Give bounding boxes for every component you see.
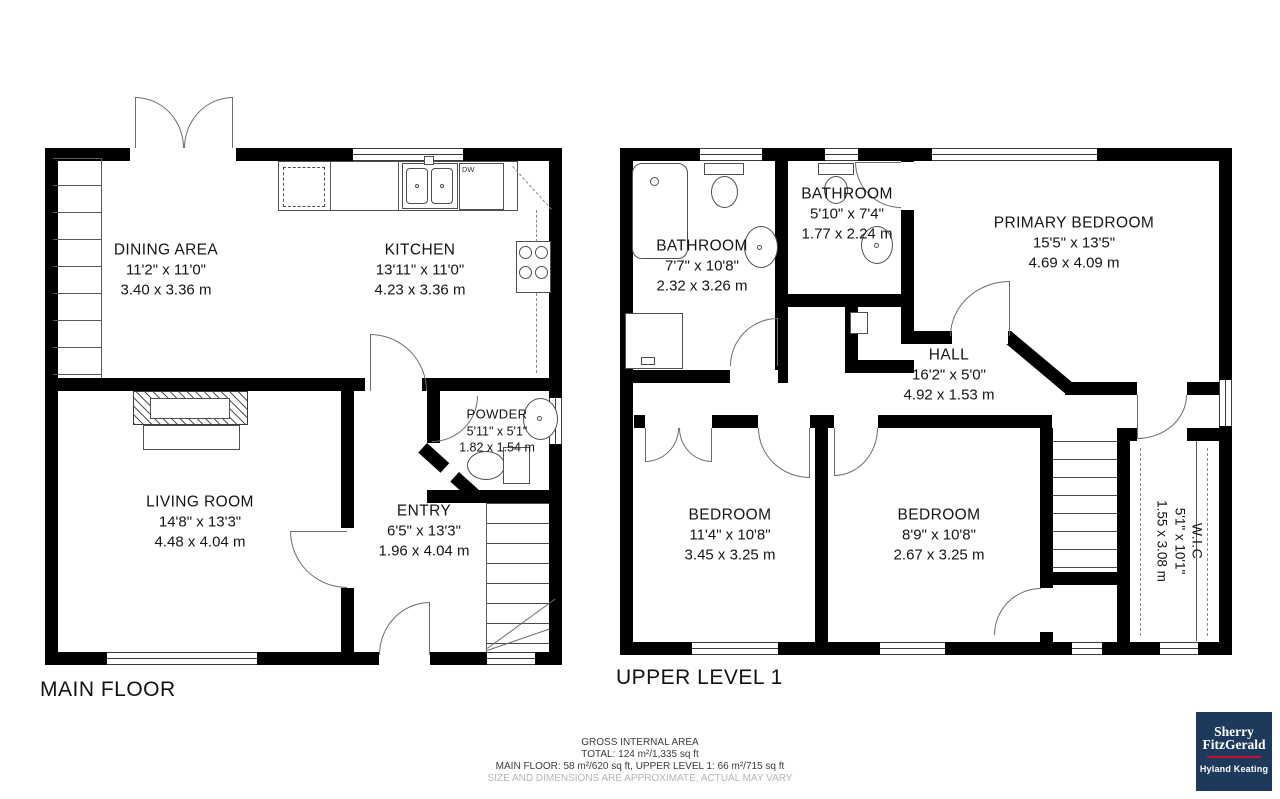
room-dim-metric: 3.45 x 3.25 m — [685, 545, 776, 565]
area-summary: GROSS INTERNAL AREA TOTAL: 124 m²/1,335 … — [0, 737, 1280, 785]
closet-rod — [1207, 448, 1208, 636]
room-name: BEDROOM — [685, 505, 776, 525]
room-dim-metric: 3.40 x 3.36 m — [114, 280, 218, 300]
room-label-bedroom-1: BEDROOM 11'4" x 10'8" 3.45 x 3.25 m — [685, 505, 776, 564]
room-dim-metric: 2.32 x 3.26 m — [656, 276, 748, 296]
door-arc — [370, 334, 427, 391]
room-name: ENTRY — [379, 501, 470, 521]
room-name: PRIMARY BEDROOM — [994, 213, 1154, 233]
door-opening — [834, 415, 878, 428]
sink-drain — [415, 184, 419, 188]
counter-edge — [536, 210, 537, 242]
room-label-kitchen: KITCHEN 13'11" x 11'0" 4.23 x 3.36 m — [375, 240, 466, 299]
door-leaf — [429, 602, 430, 655]
room-dim-metric: 2.67 x 3.25 m — [894, 545, 985, 565]
room-name: W.I.C — [1188, 500, 1206, 582]
window — [1219, 380, 1232, 426]
room-dim-metric: 4.48 x 4.04 m — [146, 532, 254, 552]
door-leaf — [1009, 281, 1010, 336]
room-dim-imperial: 5'10" x 7'4" — [801, 205, 893, 225]
shower-head — [641, 357, 655, 365]
room-name: BATHROOM — [656, 236, 748, 256]
room-dim-metric: 4.23 x 3.36 m — [375, 280, 466, 300]
room-name: HALL — [904, 345, 995, 365]
tub-drain — [650, 177, 659, 186]
room-dim-imperial: 5'11" x 5'1" — [459, 423, 535, 439]
door-leaf — [855, 162, 901, 163]
door-leaf — [645, 428, 646, 462]
door-opening — [758, 415, 810, 428]
door-arc — [645, 428, 679, 462]
utility-box — [850, 312, 868, 334]
room-dim-imperial: 13'11" x 11'0" — [375, 261, 466, 281]
room-label-dining-area: DINING AREA 11'2" x 11'0" 3.40 x 3.36 m — [114, 240, 218, 299]
wall-diagonal — [418, 443, 449, 473]
room-label-primary-bedroom: PRIMARY BEDROOM 15'5" x 13'5" 4.69 x 4.0… — [994, 213, 1154, 272]
window — [932, 148, 1097, 161]
room-name: DINING AREA — [114, 240, 218, 260]
door-arc — [758, 428, 810, 478]
floorplan-page: DW DINING AREA 11'2" x 11'0" 3.40 x 3.36… — [0, 0, 1280, 799]
fireplace-hearth — [143, 425, 240, 450]
room-label-wic: W.I.C 5'1" x 10'1" 1.55 x 3.08 m — [1153, 500, 1206, 582]
sink-drain — [874, 243, 879, 248]
room-name: BATHROOM — [801, 184, 893, 204]
room-name: LIVING ROOM — [146, 492, 254, 512]
door-opening — [1040, 588, 1053, 632]
room-dim-imperial: 8'9" x 10'8" — [894, 526, 985, 546]
door-arc — [730, 318, 778, 366]
door-opening — [645, 415, 712, 428]
counter-divider — [330, 161, 331, 211]
room-label-entry: ENTRY 6'5" x 13'3" 1.96 x 4.04 m — [379, 501, 470, 560]
closet-rod — [1140, 448, 1141, 636]
door-leaf — [135, 97, 136, 148]
room-name: POWDER — [459, 406, 535, 423]
burner — [519, 266, 532, 279]
brand-name-line2: FitzGerald — [1196, 739, 1272, 752]
refrigerator — [283, 167, 325, 207]
wall — [1040, 572, 1117, 585]
counter-divider — [398, 161, 399, 211]
wall — [45, 378, 562, 391]
door-leaf — [809, 428, 810, 478]
wall — [1187, 382, 1219, 395]
room-label-powder: POWDER 5'11" x 5'1" 1.82 x 1.54 m — [459, 406, 535, 455]
sink-drain — [757, 245, 762, 250]
counter-edge — [536, 293, 537, 373]
upper-level-title: UPPER LEVEL 1 — [616, 666, 783, 690]
toilet-tank — [818, 163, 854, 175]
room-name: KITCHEN — [375, 240, 466, 260]
faucet — [424, 156, 434, 165]
room-dim-metric: 1.82 x 1.54 m — [459, 439, 535, 455]
area-total: TOTAL: 124 m²/1,335 sq ft — [0, 749, 1280, 761]
door-arc — [379, 602, 430, 655]
door-leaf — [370, 334, 371, 391]
room-label-living-room: LIVING ROOM 14'8" x 13'3" 4.48 x 4.04 m — [146, 492, 254, 551]
door-opening — [730, 370, 778, 383]
door-arc — [994, 588, 1041, 635]
door-arc — [184, 97, 233, 148]
window — [880, 642, 945, 655]
window — [700, 148, 762, 161]
stairs — [1053, 441, 1117, 572]
main-floor-title: MAIN FLOOR — [40, 678, 176, 702]
window — [487, 652, 535, 665]
room-dim-metric: 4.69 x 4.09 m — [994, 253, 1154, 273]
room-label-bathroom-2: BATHROOM 5'10" x 7'4" 1.77 x 2.24 m — [801, 184, 893, 243]
door-arc — [679, 428, 712, 462]
room-dim-metric: 1.77 x 2.24 m — [801, 224, 893, 244]
wall — [815, 428, 828, 655]
dishwasher-label: DW — [462, 165, 475, 174]
wall — [45, 148, 562, 161]
window — [1160, 642, 1198, 655]
door-leaf — [834, 428, 835, 476]
room-dim-imperial: 11'4" x 10'8" — [685, 526, 776, 546]
area-disclaimer: SIZE AND DIMENSIONS ARE APPROXIMATE, ACT… — [0, 773, 1280, 785]
room-dim-metric: 1.96 x 4.04 m — [379, 541, 470, 561]
door-opening — [130, 148, 236, 161]
door-arc — [135, 97, 184, 148]
door-arc — [950, 281, 1010, 336]
brand-sub-name: Hyland Keating — [1196, 764, 1272, 774]
window — [353, 148, 463, 161]
area-breakdown: MAIN FLOOR: 58 m²/620 sq ft, UPPER LEVEL… — [0, 761, 1280, 773]
counter-corner — [512, 166, 552, 210]
room-dim-imperial: 16'2" x 5'0" — [904, 366, 995, 386]
window — [692, 642, 778, 655]
door-leaf — [1137, 395, 1138, 439]
room-dim-imperial: 15'5" x 13'5" — [994, 234, 1154, 254]
door-leaf — [232, 97, 233, 148]
shelves — [53, 158, 102, 378]
room-dim-imperial: 6'5" x 13'3" — [379, 522, 470, 542]
room-dim-imperial: 7'7" x 10'8" — [656, 257, 748, 277]
fireplace-insert — [150, 398, 230, 419]
stairs — [487, 503, 549, 652]
window — [1072, 642, 1102, 655]
wall — [1117, 441, 1130, 642]
window — [825, 148, 858, 161]
wall — [1065, 382, 1137, 395]
door-arc — [290, 531, 347, 588]
door-arc — [834, 428, 878, 476]
door-opening — [901, 162, 914, 210]
window — [107, 652, 257, 665]
door-leaf — [711, 428, 712, 462]
room-dim-imperial: 14'8" x 13'3" — [146, 513, 254, 533]
brand-logo: Sherry FitzGerald Hyland Keating — [1196, 712, 1272, 791]
room-dim-imperial: 5'1" x 10'1" — [1171, 500, 1189, 582]
room-label-bedroom-2: BEDROOM 8'9" x 10'8" 2.67 x 3.25 m — [894, 505, 985, 564]
room-label-hall: HALL 16'2" x 5'0" 4.92 x 1.53 m — [904, 345, 995, 404]
logo-divider — [1207, 756, 1261, 758]
door-leaf — [290, 531, 347, 532]
room-dim-metric: 4.92 x 1.53 m — [904, 385, 995, 405]
burner — [519, 246, 532, 259]
area-heading: GROSS INTERNAL AREA — [0, 737, 1280, 749]
burner — [535, 246, 548, 259]
room-dim-metric: 1.55 x 3.08 m — [1153, 500, 1171, 582]
room-dim-imperial: 11'2" x 11'0" — [114, 261, 218, 281]
wall — [1040, 428, 1053, 572]
room-name: BEDROOM — [894, 505, 985, 525]
burner — [535, 266, 548, 279]
room-label-bathroom-1: BATHROOM 7'7" x 10'8" 2.32 x 3.26 m — [656, 236, 748, 295]
sink-drain — [440, 184, 444, 188]
toilet-tank — [704, 163, 744, 175]
door-leaf — [777, 318, 778, 366]
toilet-bowl — [711, 176, 738, 208]
stair-stringer — [486, 503, 487, 652]
sink-drain — [537, 416, 542, 421]
